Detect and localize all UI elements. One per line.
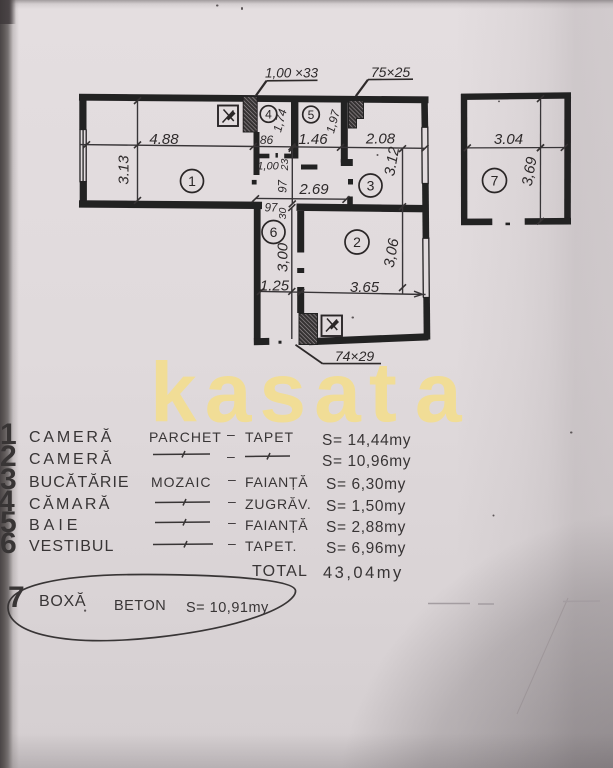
svg-text:7: 7 <box>8 581 25 614</box>
svg-text:4.88: 4.88 <box>149 131 179 148</box>
svg-text:S= 10,96my: S= 10,96my <box>322 453 411 470</box>
svg-text:–: – <box>227 426 238 442</box>
svg-text:2.08: 2.08 <box>365 131 396 148</box>
svg-text:S= 10,91my: S= 10,91my <box>186 600 269 616</box>
svg-text:1,97: 1,97 <box>323 107 343 134</box>
svg-text:S= 14,44my: S= 14,44my <box>322 432 411 449</box>
svg-text:3: 3 <box>367 178 375 194</box>
svg-text:–: – <box>228 493 239 509</box>
svg-text:3.13: 3.13 <box>116 155 133 185</box>
svg-text:kasata: kasata <box>150 346 470 440</box>
svg-text:3,69: 3,69 <box>519 155 541 187</box>
svg-text:MOZAIC: MOZAIC <box>151 474 211 490</box>
svg-text:CAMERĂ: CAMERĂ <box>29 427 114 446</box>
svg-text:30: 30 <box>277 208 289 220</box>
svg-text:4: 4 <box>265 108 272 122</box>
svg-text:1,00 ×33: 1,00 ×33 <box>265 66 318 81</box>
svg-text:–: – <box>228 514 239 530</box>
svg-text:CĂMARĂ: CĂMARĂ <box>29 494 112 513</box>
svg-text:1,00: 1,00 <box>257 161 279 173</box>
svg-text:5: 5 <box>308 108 315 122</box>
svg-text:S= 6,96my: S= 6,96my <box>326 540 406 557</box>
svg-text:3,06: 3,06 <box>381 236 403 268</box>
svg-text:FAIANȚĂ: FAIANȚĂ <box>245 474 308 490</box>
svg-text:–: – <box>228 535 239 551</box>
svg-text:BOXĂ: BOXĂ <box>39 591 86 610</box>
svg-text:97: 97 <box>278 180 290 193</box>
svg-text:FAIANȚĂ: FAIANȚĂ <box>245 517 308 533</box>
svg-text:23: 23 <box>279 159 291 172</box>
svg-text:3.04: 3.04 <box>494 131 523 148</box>
svg-text:6: 6 <box>270 224 278 240</box>
svg-text:7: 7 <box>491 173 499 189</box>
svg-text:2: 2 <box>353 234 361 250</box>
svg-text:TOTAL: TOTAL <box>252 563 308 580</box>
svg-text:1: 1 <box>188 173 196 189</box>
svg-text:75×25: 75×25 <box>371 64 411 80</box>
svg-text:TAPET: TAPET <box>245 429 294 445</box>
svg-text:CAMERĂ: CAMERĂ <box>29 449 114 468</box>
svg-text:TAPET.: TAPET. <box>245 538 297 554</box>
svg-text:VESTIBUL: VESTIBUL <box>29 538 114 555</box>
svg-text:1.46: 1.46 <box>298 131 328 148</box>
svg-text:1,74: 1,74 <box>270 107 290 133</box>
svg-text:3.12: 3.12 <box>381 145 403 177</box>
svg-text:1.25: 1.25 <box>260 278 290 295</box>
svg-text:3,00: 3,00 <box>275 242 292 272</box>
svg-text:74×29: 74×29 <box>335 348 375 364</box>
svg-text:PARCHET: PARCHET <box>149 429 222 445</box>
svg-text:86: 86 <box>260 133 274 147</box>
svg-text:S= 2,88my: S= 2,88my <box>326 519 406 536</box>
svg-text:97: 97 <box>265 203 278 215</box>
svg-text:43,04my: 43,04my <box>323 564 404 582</box>
svg-text:BETON: BETON <box>114 598 166 614</box>
svg-text:3.65: 3.65 <box>350 279 380 296</box>
svg-text:–: – <box>228 471 239 487</box>
svg-text:6: 6 <box>0 527 17 560</box>
svg-text:BAIE: BAIE <box>29 517 81 534</box>
svg-text:ZUGRĂV.: ZUGRĂV. <box>245 496 312 512</box>
svg-text:2.69: 2.69 <box>298 181 329 198</box>
svg-text:–: – <box>227 448 238 464</box>
svg-text:S= 6,30my: S= 6,30my <box>326 476 406 493</box>
svg-text:BUCĂTĂRIE: BUCĂTĂRIE <box>29 472 130 491</box>
svg-text:S= 1,50my: S= 1,50my <box>326 498 406 515</box>
